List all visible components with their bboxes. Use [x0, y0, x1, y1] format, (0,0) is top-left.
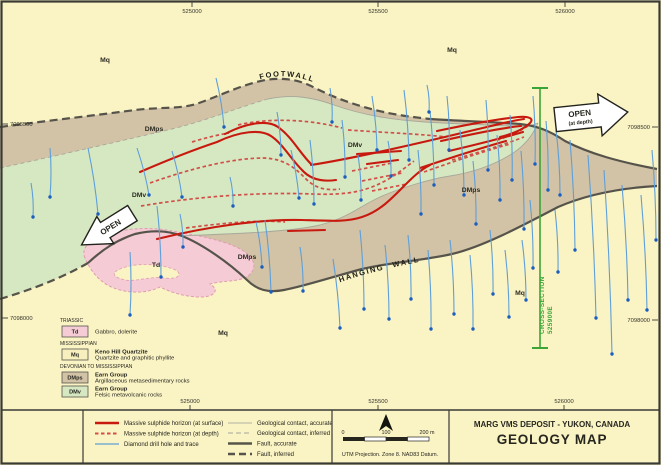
legend-era-label: DEVONIAN TO MISSISSIPPIAN	[60, 364, 133, 370]
drill-hole-end-dot	[626, 298, 629, 301]
drill-hole-end-dot	[407, 158, 410, 161]
drill-hole-end-dot	[447, 148, 450, 151]
drill-hole-end-dot	[498, 198, 501, 201]
drill-hole-end-dot	[427, 110, 430, 113]
legend-unit-name: Keno Hill Quartzite	[95, 350, 148, 356]
legend-label: Massive sulphide horizon (at depth)	[124, 432, 219, 438]
legend-unit-name: Felsic metavolcanic rocks	[95, 393, 162, 399]
drill-hole-end-dot	[558, 193, 561, 196]
geology-map-figure: CROSS-SECTION 525900E FOOTWALL HANGING W…	[0, 0, 661, 465]
cross-section-label-line1: CROSS-SECTION	[539, 276, 546, 334]
drill-hole-end-dot	[260, 265, 263, 268]
legend-unit-code: Td	[72, 330, 79, 336]
scale-bar-segment	[408, 437, 430, 441]
grid-coordinate-label: 525000	[182, 9, 201, 15]
drill-hole-end-dot	[654, 238, 657, 241]
drill-hole-end-dot	[556, 270, 559, 273]
grid-coordinate-label: 525000	[180, 399, 199, 405]
drill-hole-end-dot	[610, 352, 613, 355]
drill-hole-end-dot	[491, 292, 494, 295]
drill-hole-end-dot	[128, 313, 131, 316]
sulphide-horizon-surface-line	[288, 230, 325, 231]
drill-hole-end-dot	[510, 178, 513, 181]
drill-hole-end-dot	[297, 196, 300, 199]
drill-hole-end-dot	[452, 312, 455, 315]
map-unit-label: Td	[152, 262, 160, 269]
drill-hole-end-dot	[269, 290, 272, 293]
legend-label: Geological contact, inferred	[257, 431, 330, 437]
grid-coordinate-label: 7098000	[627, 318, 650, 324]
legend-era-label: TRIASSIC	[60, 318, 83, 324]
drill-hole-end-dot	[222, 125, 225, 128]
grid-coordinate-label: 7098000	[10, 316, 33, 322]
scale-tick-label: 200 m	[420, 430, 435, 436]
drill-hole-end-dot	[573, 248, 576, 251]
legend-unit-name: Argillaceous metasedimentary rocks	[95, 379, 190, 385]
grid-coordinate-label: 525500	[368, 9, 387, 15]
drill-hole-end-dot	[279, 153, 282, 156]
drill-hole-end-dot	[359, 198, 362, 201]
drill-hole-end-dot	[159, 275, 162, 278]
map-unit-label: DMv	[348, 142, 363, 149]
legend-unit-name: Earn Group	[95, 387, 128, 393]
drill-hole-end-dot	[486, 168, 489, 171]
map-unit-label: Mq	[218, 330, 228, 337]
drill-hole-end-dot	[524, 298, 527, 301]
drill-hole-end-dot	[362, 307, 365, 310]
legend-label: Fault, accurate	[257, 442, 297, 448]
legend-label: Massive sulphide horizon (at surface)	[124, 421, 223, 427]
title-block: MARG VMS DEPOSIT - YUKON, CANADA GEOLOGY…	[474, 420, 631, 447]
drill-hole-end-dot	[389, 174, 392, 177]
legend-unit-name: Gabbro, dolerite	[95, 330, 138, 336]
map-unit-label: Mq	[515, 290, 525, 297]
drill-hole-end-dot	[181, 245, 184, 248]
map-unit-label: Mq	[447, 47, 457, 54]
drill-hole-end-dot	[375, 148, 378, 151]
drill-hole-end-dot	[546, 188, 549, 191]
map-unit-label: DMps	[238, 254, 257, 261]
drill-hole-end-dot	[301, 289, 304, 292]
drill-hole-end-dot	[409, 297, 412, 300]
grid-coordinate-label: 526000	[555, 9, 574, 15]
map-unit-label: DMv	[132, 192, 147, 199]
legend-label: Geological contact, accurate	[257, 421, 333, 427]
drill-hole-end-dot	[474, 222, 477, 225]
map-title-line1: MARG VMS DEPOSIT - YUKON, CANADA	[474, 420, 631, 429]
legend-unit-code: DMv	[69, 390, 82, 396]
drill-hole-end-dot	[471, 327, 474, 330]
scale-tick-label: 0	[342, 430, 345, 436]
geology-map-svg: CROSS-SECTION 525900E FOOTWALL HANGING W…	[0, 0, 661, 465]
grid-coordinate-label: 525500	[368, 399, 387, 405]
drill-hole-end-dot	[533, 162, 536, 165]
projection-note: UTM Projection. Zone 8. NAD83 Datum.	[342, 452, 438, 458]
drill-hole-end-dot	[507, 315, 510, 318]
scale-tick-label: 100	[382, 430, 391, 436]
drill-hole-end-dot	[147, 193, 150, 196]
grid-coordinate-label: 526000	[554, 399, 573, 405]
cross-section-label-line2: 525900E	[547, 306, 554, 334]
legend-label: Fault, inferred	[257, 452, 294, 458]
map-unit-label: DMps	[462, 187, 481, 194]
map-title-line2: GEOLOGY MAP	[497, 432, 608, 447]
drill-hole-end-dot	[48, 195, 51, 198]
legend-unit-name: Quartzite and graphitic phyllite	[95, 356, 175, 362]
drill-hole-end-dot	[522, 227, 525, 230]
drill-hole-end-dot	[343, 175, 346, 178]
drill-hole-end-dot	[429, 327, 432, 330]
legend-label: Diamond drill hole and trace	[124, 442, 199, 448]
legend-unit-code: DMps	[67, 376, 82, 382]
scale-bar-segment	[386, 437, 408, 441]
grid-coordinate-label: 7098500	[627, 125, 650, 131]
drill-hole-end-dot	[180, 195, 183, 198]
drill-hole-end-dot	[645, 308, 648, 311]
drill-hole-end-dot	[594, 316, 597, 319]
legend-era-label: MISSISSIPPIAN	[60, 341, 97, 347]
map-unit-label: DMps	[145, 126, 164, 133]
drill-hole-end-dot	[31, 215, 34, 218]
legend-unit-name: Earn Group	[95, 373, 128, 379]
grid-coordinate-label: 7098500	[10, 122, 33, 128]
drill-hole-end-dot	[531, 266, 534, 269]
drill-hole-end-dot	[330, 120, 333, 123]
drill-hole-end-dot	[338, 326, 341, 329]
map-unit-label: Mq	[100, 57, 110, 64]
drill-hole-end-dot	[312, 202, 315, 205]
scale-bar-segment	[343, 437, 365, 441]
drill-hole-end-dot	[419, 212, 422, 215]
drill-hole-end-dot	[231, 204, 234, 207]
scale-bar-segment	[365, 437, 387, 441]
drill-hole-end-dot	[432, 183, 435, 186]
drill-hole-end-dot	[387, 317, 390, 320]
legend-unit-code: Mq	[71, 353, 80, 359]
